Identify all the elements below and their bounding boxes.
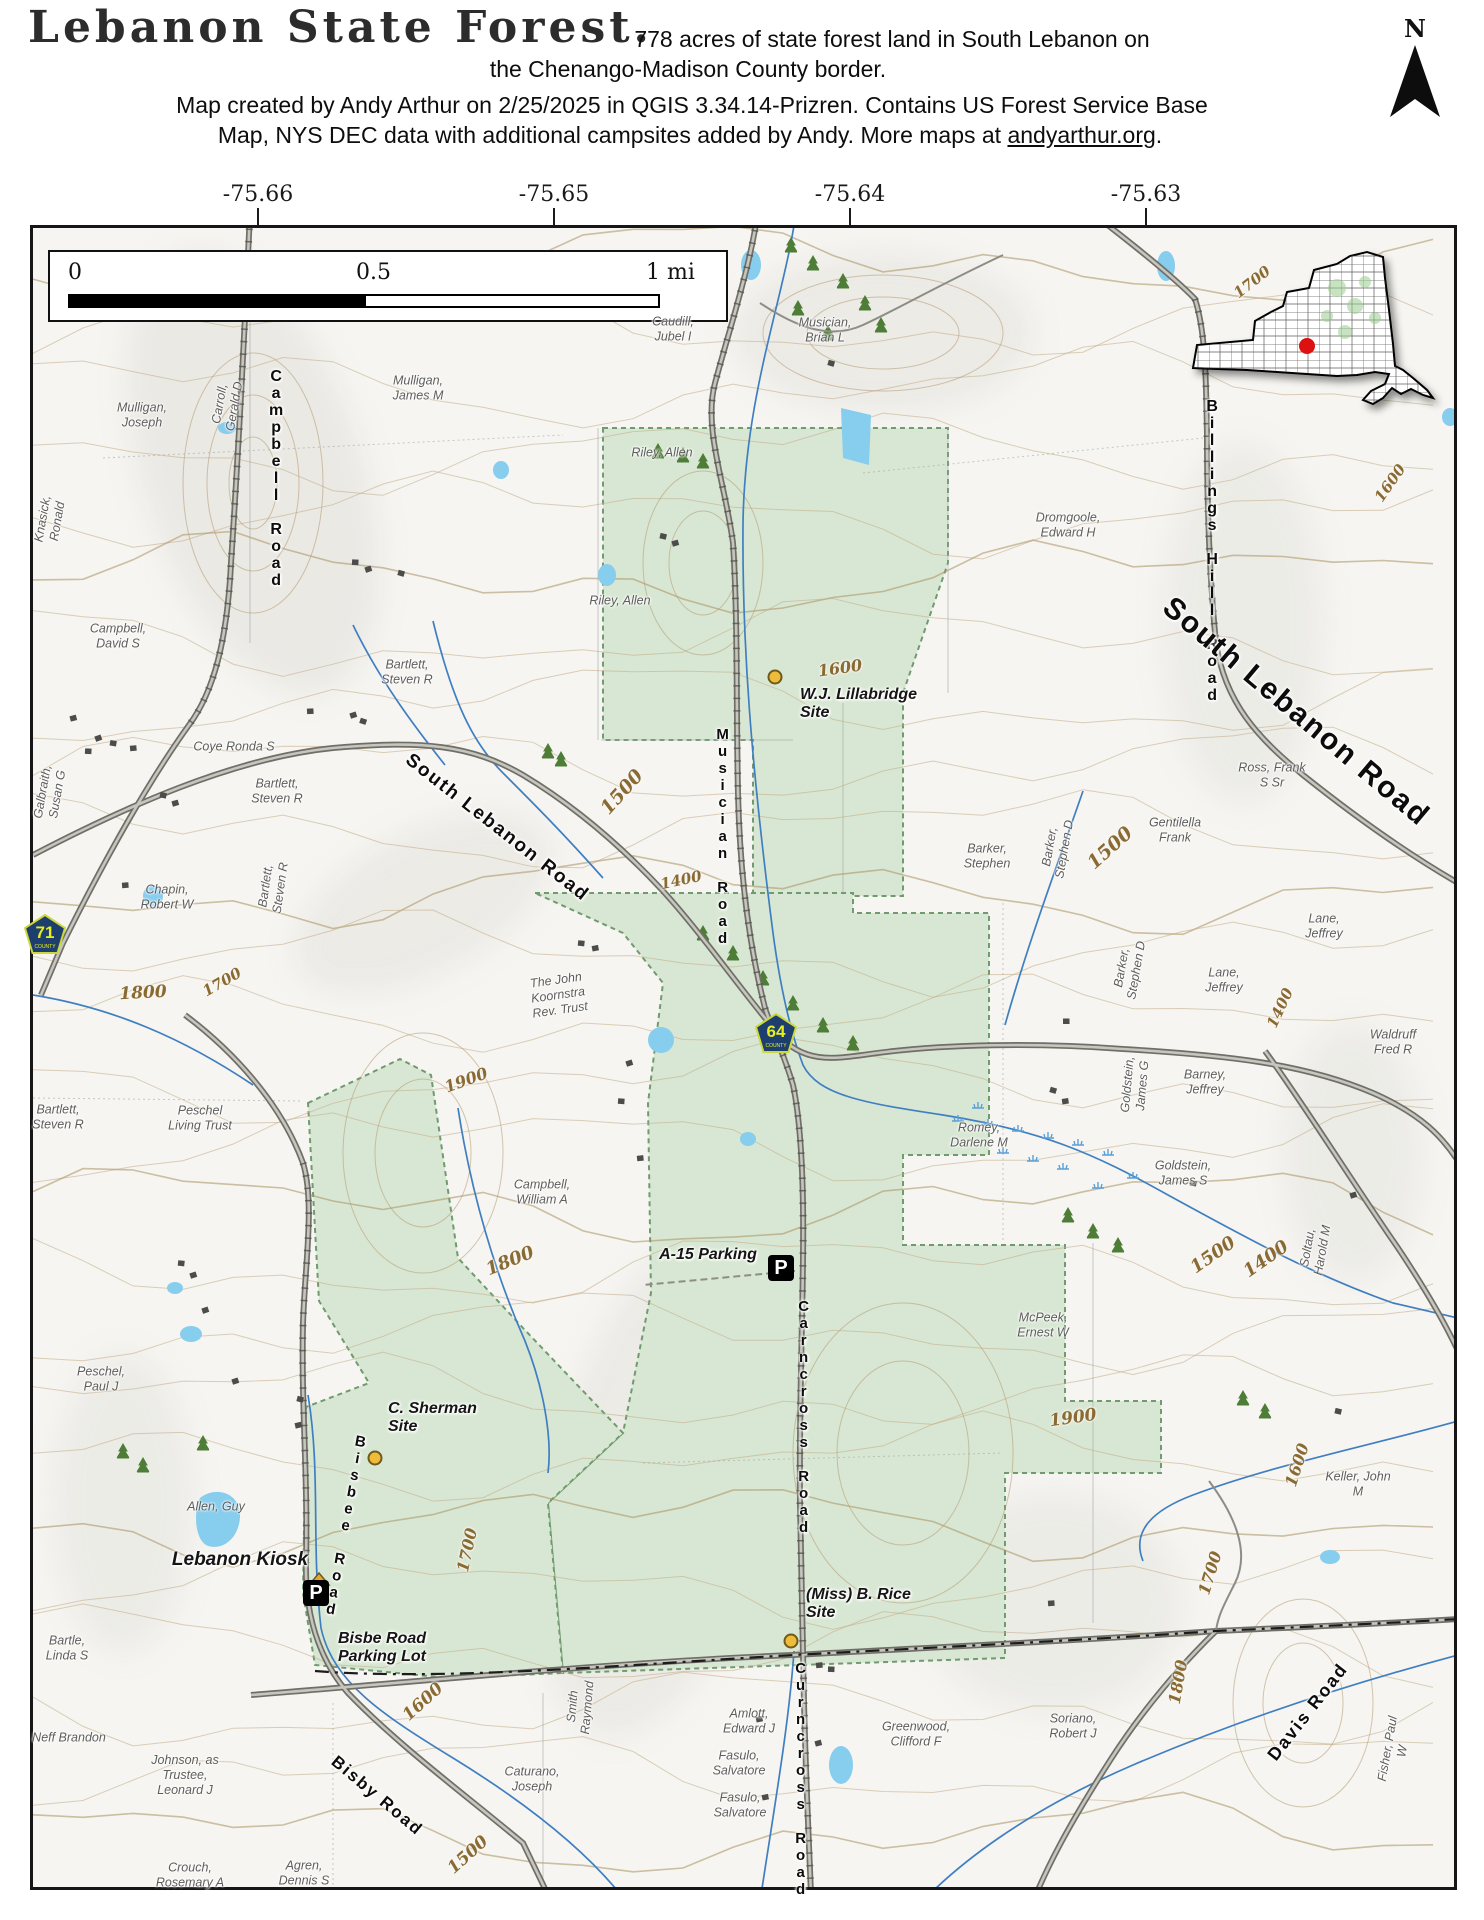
inset-location-dot	[1299, 338, 1315, 354]
scale-mid: 0.5	[356, 260, 391, 285]
longitude-label: -75.63	[1111, 182, 1181, 207]
scale-segment-filled	[68, 294, 364, 308]
scale-bar: 0 0.5 1 mi	[48, 250, 728, 322]
north-arrow: N	[1386, 14, 1444, 126]
attribution-line-1: Map created by Andy Arthur on 2/25/2025 …	[176, 92, 1208, 119]
subtitle-line-1: 778 acres of state forest land in South …	[634, 26, 1149, 53]
longitude-tick	[849, 208, 851, 225]
longitude-label: -75.65	[519, 182, 589, 207]
scale-end: 1 mi	[646, 260, 695, 285]
longitude-label: -75.66	[223, 182, 293, 207]
attribution-line-2: Map, NYS DEC data with additional campsi…	[218, 122, 1162, 149]
scale-start: 0	[68, 260, 82, 285]
ny-inset-map	[1187, 248, 1437, 424]
longitude-tick	[553, 208, 555, 225]
longitude-tick	[1145, 208, 1147, 225]
longitude-label: -75.64	[815, 182, 885, 207]
longitude-tick	[257, 208, 259, 225]
attribution-text: Map, NYS DEC data with additional campsi…	[218, 122, 1008, 148]
page-title: Lebanon State Forest.	[28, 2, 653, 53]
map-graphics	[33, 228, 1457, 1890]
ny-state-shape	[1187, 248, 1437, 424]
north-label: N	[1386, 14, 1444, 43]
andyarthur-link[interactable]: andyarthur.org	[1007, 122, 1155, 148]
attribution-period: .	[1156, 122, 1162, 148]
subtitle-line-2: the Chenango-Madison County border.	[490, 56, 886, 83]
scale-segment-empty	[364, 294, 660, 308]
map-canvas	[30, 225, 1457, 1890]
north-arrow-icon	[1386, 43, 1444, 121]
